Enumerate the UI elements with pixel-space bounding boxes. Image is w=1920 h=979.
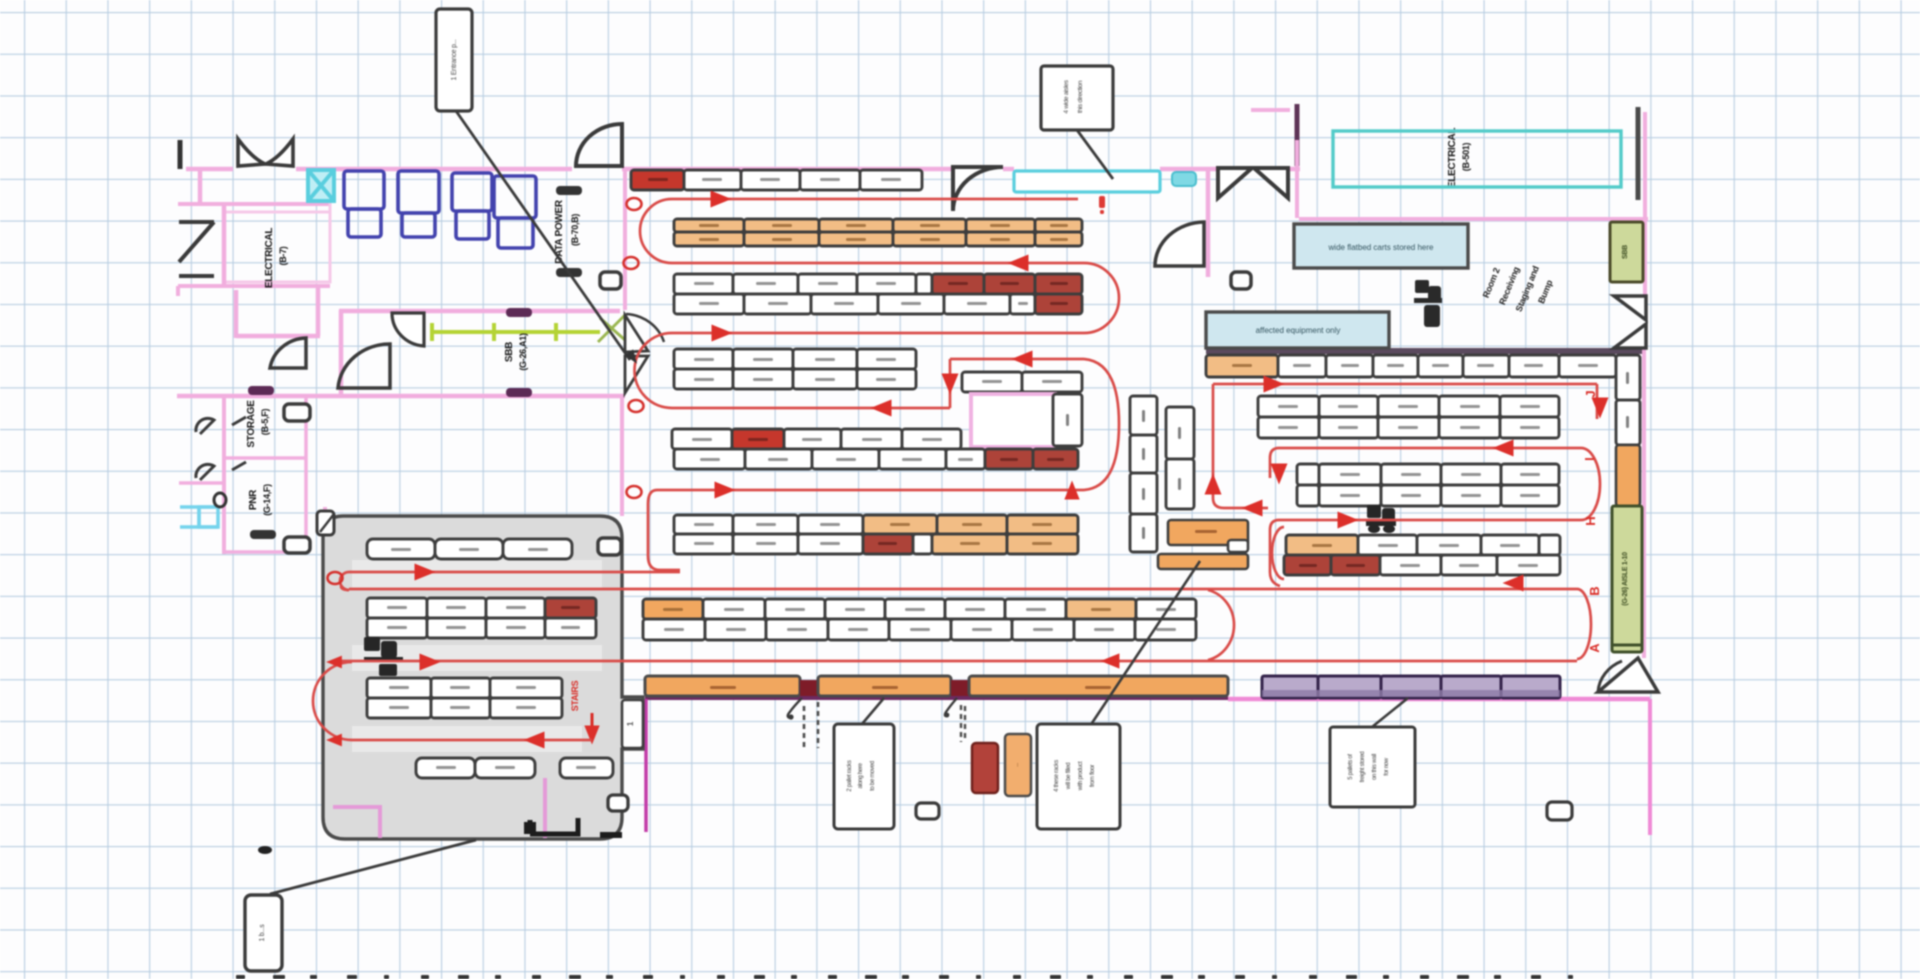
svg-text:(B-7): (B-7)	[278, 246, 288, 265]
svg-text:1 b...s: 1 b...s	[259, 924, 266, 942]
svg-text:J: J	[1583, 390, 1598, 397]
svg-text:A: A	[1587, 643, 1602, 653]
svg-text:ELECTRICAL: ELECTRICAL	[264, 228, 275, 289]
svg-text:B: B	[1587, 586, 1602, 595]
svg-text:H: H	[1583, 516, 1598, 525]
svg-text:on this wall: on this wall	[1372, 754, 1378, 780]
svg-text:to be moved: to be moved	[870, 761, 876, 791]
svg-text:from floor: from floor	[1090, 765, 1096, 788]
svg-text:affected equipment only: affected equipment only	[1256, 326, 1341, 335]
svg-text:SBB: SBB	[1622, 245, 1629, 259]
svg-text:(G-14,F): (G-14,F)	[262, 484, 272, 516]
svg-text:along here: along here	[858, 762, 864, 788]
svg-text:(B-501): (B-501)	[1461, 143, 1471, 172]
svg-text:freight stored: freight stored	[1360, 752, 1366, 783]
svg-text:5 pallets of: 5 pallets of	[1348, 754, 1354, 780]
svg-text:for now: for now	[1384, 757, 1390, 776]
svg-text:2 pallet racks: 2 pallet racks	[847, 760, 853, 791]
svg-text:PNR: PNR	[248, 489, 259, 510]
svg-text:STORAGE: STORAGE	[246, 400, 257, 448]
svg-text:(B-70,B): (B-70,B)	[570, 214, 580, 246]
svg-text:with product: with product	[1078, 761, 1084, 791]
svg-text:wide flatbed carts stored here: wide flatbed carts stored here	[1328, 243, 1434, 252]
svg-text:1 Entrance p...: 1 Entrance p...	[451, 39, 458, 80]
svg-text:4 these racks: 4 these racks	[1054, 760, 1060, 792]
svg-text:SBB: SBB	[504, 342, 515, 362]
svg-text:(G-26,A1): (G-26,A1)	[518, 333, 528, 371]
svg-text:(G-26) AISLE 1-10: (G-26) AISLE 1-10	[1622, 552, 1629, 606]
svg-text:I: I	[1582, 457, 1597, 461]
svg-text:ELECTRICAL: ELECTRICAL	[1447, 128, 1458, 189]
svg-text:4 wide aisles: 4 wide aisles	[1063, 79, 1070, 113]
svg-text:(B-5,F): (B-5,F)	[260, 409, 270, 436]
svg-text:this direction: this direction	[1077, 80, 1084, 113]
svg-text:...: ...	[1014, 762, 1020, 767]
svg-text:STAIRS: STAIRS	[570, 680, 580, 711]
svg-text:will be filled: will be filled	[1066, 763, 1072, 790]
